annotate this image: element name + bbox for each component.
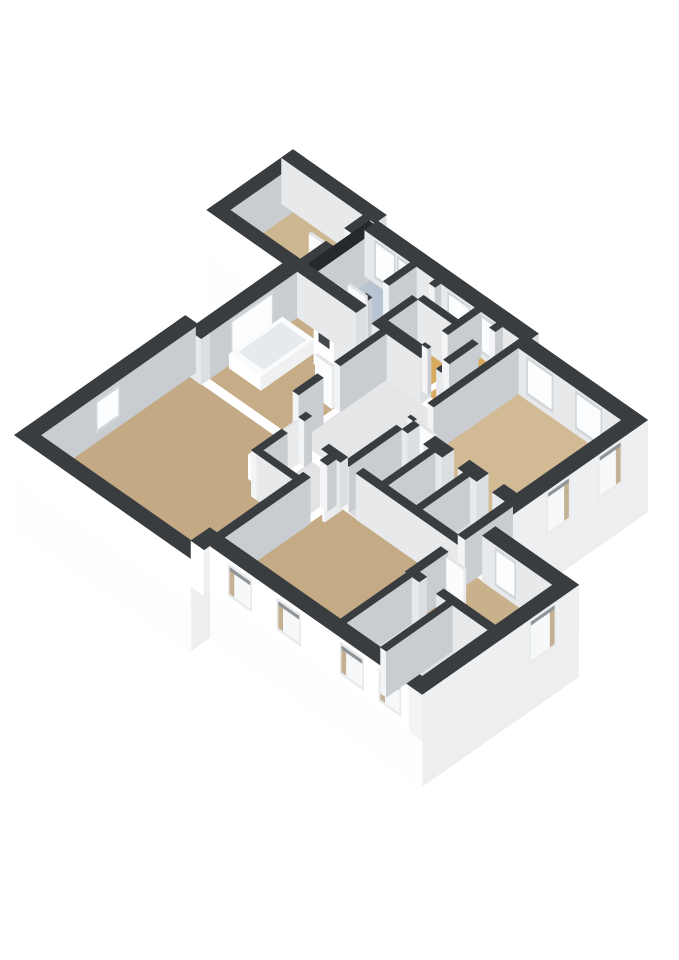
wall-right-block-right-window-reveal (550, 606, 554, 647)
wall-corridor-left-face-se (305, 416, 312, 467)
wall-left-step-face-se (201, 333, 210, 385)
door-tub-room-face-se (332, 365, 334, 409)
wall-bottom-step-face-sw (191, 541, 204, 596)
floorplan-3d-render (0, 0, 679, 960)
wall-room-b-right-face-se (428, 347, 431, 395)
wall-tub-right-face-sw (335, 362, 341, 412)
wall-bedroom-right-window-reveal (565, 479, 569, 520)
wall-bottom-room-left-face-sw (320, 460, 327, 511)
wall-corridor-left-face-sw (299, 417, 305, 467)
wall-right-block-right-face-sw (409, 685, 422, 740)
wall-white-rooms-div-face-sw (381, 647, 387, 697)
wall-bottom-room-left-face-se (328, 459, 337, 511)
wall-bottom-room-top-face-se (340, 457, 347, 508)
wall-right-tan-bottom-face-sw (412, 577, 419, 628)
floorplan-page (0, 0, 679, 960)
wall-room-b-right-face-sw (422, 345, 428, 395)
wall-corridor-left-face-sw (251, 450, 257, 500)
wall-bedroom-right-window-reveal (616, 443, 620, 484)
